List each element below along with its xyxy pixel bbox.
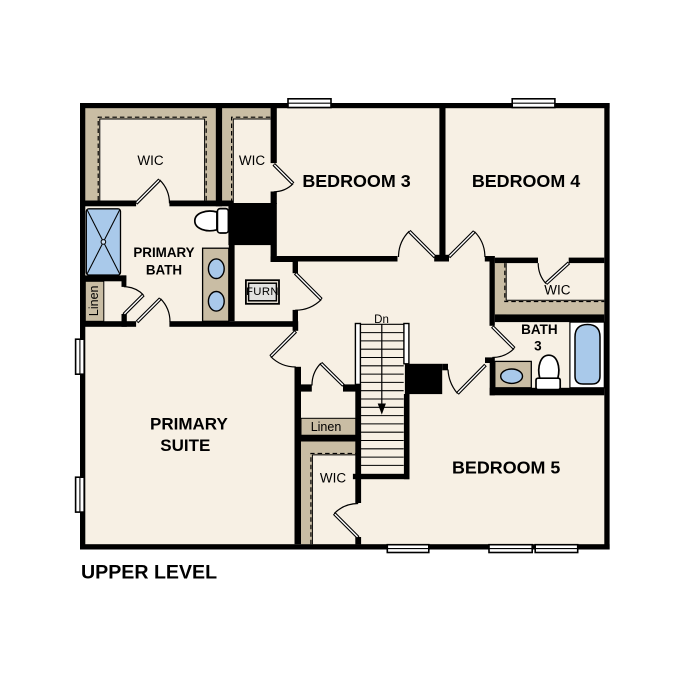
svg-text:WIC: WIC bbox=[320, 470, 346, 485]
svg-text:UPPER LEVEL: UPPER LEVEL bbox=[81, 562, 217, 584]
svg-text:BEDROOM 4: BEDROOM 4 bbox=[472, 171, 580, 191]
svg-text:BATH: BATH bbox=[146, 262, 182, 277]
svg-text:WIC: WIC bbox=[239, 153, 265, 168]
svg-text:PRIMARY: PRIMARY bbox=[150, 414, 228, 433]
svg-text:Linen: Linen bbox=[311, 420, 342, 434]
svg-text:SUITE: SUITE bbox=[160, 436, 210, 455]
svg-text:PRIMARY: PRIMARY bbox=[133, 245, 194, 260]
svg-text:WIC: WIC bbox=[137, 153, 163, 168]
svg-text:3: 3 bbox=[534, 338, 542, 353]
svg-text:BEDROOM 5: BEDROOM 5 bbox=[452, 457, 560, 477]
svg-text:FURN: FURN bbox=[246, 286, 279, 298]
svg-text:BATH: BATH bbox=[521, 322, 558, 337]
svg-text:Dn: Dn bbox=[374, 314, 389, 326]
svg-text:WIC: WIC bbox=[544, 283, 570, 298]
svg-text:Linen: Linen bbox=[87, 285, 101, 316]
svg-text:BEDROOM 3: BEDROOM 3 bbox=[302, 171, 410, 191]
